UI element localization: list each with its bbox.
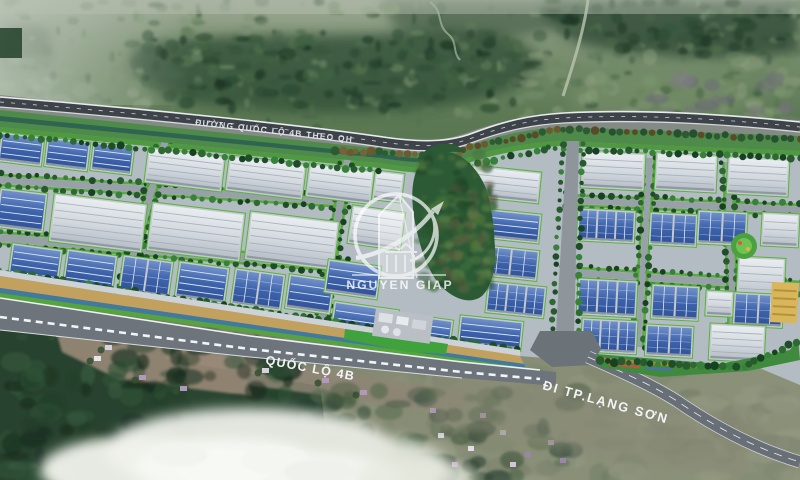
svg-text:NGUYEN GIAP: NGUYEN GIAP <box>346 278 453 292</box>
